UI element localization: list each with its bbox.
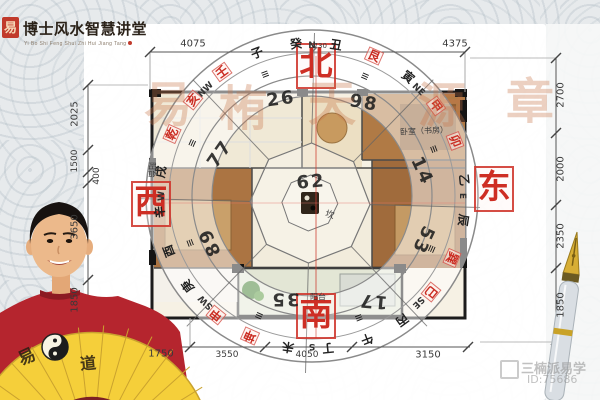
watermark-logo-icon <box>500 360 519 379</box>
dimension-label-bottom: 3150 <box>415 350 440 361</box>
dimension-label-left: 1850 <box>70 287 81 312</box>
dimension-label-left: 3650 <box>70 214 81 239</box>
cardinal-west: 西 <box>131 181 171 227</box>
dimension-label-top: 4075 <box>180 39 205 50</box>
mountain-label: 辰 <box>456 213 470 227</box>
room-label: 阳台 <box>147 162 158 178</box>
dimension-label-bottom: 3550 <box>216 350 239 360</box>
dimension-label-bottom: 1750 <box>148 349 173 360</box>
logo-yi-mark: 易 <box>2 17 19 38</box>
mountain-label: 丑 <box>329 38 343 52</box>
brand-dot-icon <box>128 41 132 45</box>
watermark-char: 易 <box>144 65 192 135</box>
dimension-label-right: 2000 <box>556 156 567 181</box>
dimension-label-right: 2350 <box>556 223 567 248</box>
dimension-label-right: 2700 <box>556 82 567 107</box>
brand-subtitle: Yi Bo Shi Feng Shui Zhi Hui Jiang Tang <box>24 41 132 47</box>
direction-label: W <box>157 191 167 201</box>
watermark-char: 章 <box>506 62 554 132</box>
watermark-char: 栯 <box>219 69 267 139</box>
dimension-label-left: 1500 <box>70 150 80 173</box>
palace-number: 35 <box>270 289 299 310</box>
cardinal-east: 东 <box>474 166 514 212</box>
mountain-label: 乙 <box>458 173 471 186</box>
watermark-char: 源 <box>418 66 466 136</box>
page: 易 博士风水智慧讲堂 Yi Bo Shi Feng Shui Zhi Hui J… <box>0 0 600 400</box>
direction-label: E <box>457 193 467 199</box>
watermark-char: 天 <box>308 64 356 134</box>
mountain-label: 丁 <box>321 342 334 355</box>
palace-number: 17 <box>358 289 389 312</box>
mountain-label: 癸 <box>289 37 302 50</box>
dimension-label-left: 2025 <box>70 101 81 126</box>
dimension-label-top: 5730 <box>309 42 327 50</box>
corner-watermark: 三楠派易学 ID:75686 <box>497 356 597 394</box>
room-label: 阳台 <box>310 292 326 303</box>
dimension-label-bottom: 4050 <box>296 350 319 360</box>
mountain-label: 辛 <box>153 205 166 218</box>
brand-title: 博士风水智慧讲堂 <box>23 18 147 39</box>
palace-number: 62 <box>296 170 327 193</box>
palace-number: 26 <box>265 87 297 112</box>
dimension-label-top: 4375 <box>442 39 467 50</box>
mountain-label: 未 <box>281 340 295 354</box>
brand-logo: 易 博士风水智慧讲堂 Yi Bo Shi Feng Shui Zhi Hui J… <box>2 15 192 55</box>
fan-calligraphy-char: 道 <box>79 349 97 374</box>
dimension-label-right: 1850 <box>556 292 567 317</box>
dimension-label-left: 400 <box>92 167 102 184</box>
